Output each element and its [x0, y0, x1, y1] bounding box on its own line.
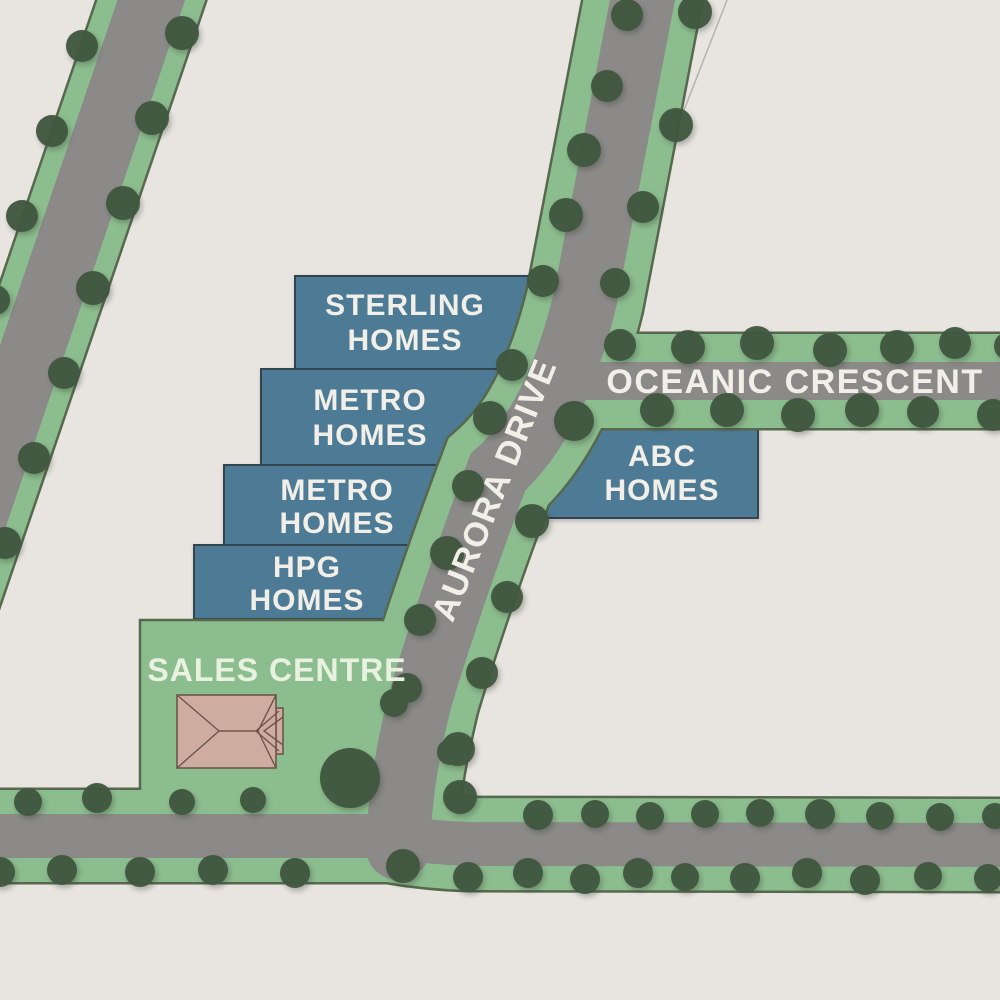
tree-icon	[554, 401, 594, 441]
abc-homes-label-line1: ABC	[628, 440, 696, 473]
metro-homes-south-label-line2: HOMES	[279, 507, 394, 540]
metro-homes-north-label-line1: METRO	[313, 384, 426, 417]
tree-icon	[515, 504, 549, 538]
tree-icon	[240, 787, 266, 813]
tree-icon	[730, 863, 760, 893]
tree-icon	[466, 657, 498, 689]
tree-icon	[513, 858, 543, 888]
tree-icon	[453, 862, 483, 892]
tree-icon	[591, 70, 623, 102]
tree-icon	[66, 30, 98, 62]
tree-icon	[48, 357, 80, 389]
tree-icon	[914, 862, 942, 890]
tree-icon	[659, 108, 693, 142]
site-plan-svg: STERLING HOMES METRO HOMES METRO HOMES H…	[0, 0, 1000, 1000]
tree-icon	[82, 783, 112, 813]
tree-icon	[813, 333, 847, 367]
tree-icon	[443, 780, 477, 814]
tree-icon	[386, 849, 420, 883]
sterling-homes-label-line1: STERLING	[325, 289, 485, 322]
sales-centre-building-icon	[177, 695, 283, 768]
tree-icon	[581, 800, 609, 828]
tree-icon	[866, 802, 894, 830]
tree-icon	[792, 858, 822, 888]
hpg-homes-label-line2: HOMES	[249, 584, 364, 617]
tree-icon	[491, 581, 523, 613]
tree-icon	[850, 865, 880, 895]
tree-icon	[623, 858, 653, 888]
site-plan-map: STERLING HOMES METRO HOMES METRO HOMES H…	[0, 0, 1000, 1000]
tree-icon	[76, 271, 110, 305]
tree-icon	[926, 803, 954, 831]
tree-icon	[135, 101, 169, 135]
tree-icon	[280, 858, 310, 888]
tree-icon	[880, 330, 914, 364]
tree-icon	[570, 864, 600, 894]
oceanic-crescent-label: OCEANIC CRESCENT	[606, 363, 983, 401]
tree-icon	[320, 748, 380, 808]
tree-icon	[691, 800, 719, 828]
tree-icon	[6, 200, 38, 232]
south-road	[0, 836, 1000, 845]
tree-icon	[169, 789, 195, 815]
tree-icon	[18, 442, 50, 474]
tree-icon	[437, 739, 463, 765]
tree-icon	[47, 855, 77, 885]
tree-icon	[527, 265, 559, 297]
tree-icon	[198, 855, 228, 885]
tree-icon	[36, 115, 68, 147]
tree-icon	[604, 329, 636, 361]
tree-icon	[125, 857, 155, 887]
tree-icon	[611, 0, 643, 31]
metro-homes-north-label-line2: HOMES	[312, 419, 427, 452]
tree-icon	[380, 689, 408, 717]
tree-icon	[781, 398, 815, 432]
sales-centre-label: SALES CENTRE	[147, 652, 406, 688]
tree-icon	[567, 133, 601, 167]
tree-icon	[14, 788, 42, 816]
tree-icon	[106, 186, 140, 220]
tree-icon	[671, 330, 705, 364]
tree-icon	[671, 863, 699, 891]
metro-homes-south-label-line1: METRO	[280, 474, 393, 507]
tree-icon	[740, 326, 774, 360]
tree-icon	[746, 799, 774, 827]
sterling-homes-label-line2: HOMES	[347, 324, 462, 357]
tree-icon	[636, 802, 664, 830]
building-porch	[276, 708, 283, 754]
tree-icon	[523, 800, 553, 830]
hpg-homes-label-line1: HPG	[273, 551, 341, 584]
tree-icon	[805, 799, 835, 829]
tree-icon	[600, 268, 630, 298]
tree-icon	[939, 327, 971, 359]
tree-icon	[165, 16, 199, 50]
tree-icon	[627, 191, 659, 223]
abc-homes-label-line2: HOMES	[604, 474, 719, 507]
tree-icon	[549, 198, 583, 232]
